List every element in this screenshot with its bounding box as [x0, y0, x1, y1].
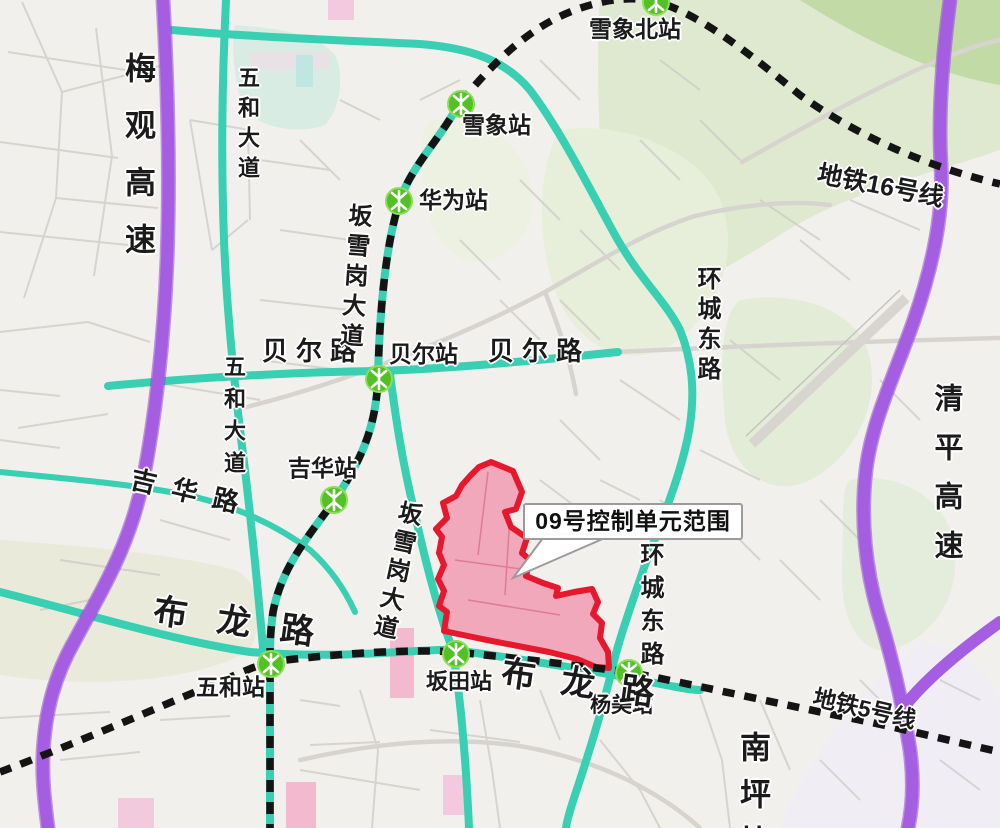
road-label-wuhe-blvd-north: 五和大道	[236, 66, 258, 186]
station-label-wuhe: 五和站	[196, 676, 265, 699]
road-label-qingping-expressway: 清平高速	[931, 383, 960, 579]
road-label-wuhe-blvd-south: 五和大道	[222, 355, 244, 483]
station-label-bantian: 坂田站	[426, 671, 492, 693]
road-label-meiguan-expressway: 梅观高速	[122, 52, 153, 280]
station-label-beier: 贝尔站	[389, 343, 458, 366]
station-label-huawei: 华为站	[419, 189, 488, 212]
planning-map: 雪象北站 雪象站 华为站 贝尔站 吉华站 五和站 坂田站 杨美站 贝尔路 贝尔路…	[0, 0, 1000, 828]
road-label-beier-east: 贝尔路	[488, 338, 590, 364]
metro-icon-bantian	[443, 641, 469, 667]
station-label-xuexiangbei: 雪象北站	[589, 18, 681, 41]
road-label-nanping-expressway: 南坪快	[737, 731, 768, 828]
station-label-jihua: 吉华站	[288, 457, 357, 480]
metro-icon-beier	[366, 366, 392, 392]
road-label-huancheng-east-north: 环城东路	[694, 266, 718, 386]
metro-icon-huawei	[386, 188, 412, 214]
station-label-xuexiang: 雪象站	[462, 114, 531, 137]
road-label-huancheng-east-south: 环城东路	[637, 542, 661, 674]
metro-icon-jihua	[321, 487, 347, 513]
callout-box: 09号控制单元范围	[523, 503, 743, 540]
